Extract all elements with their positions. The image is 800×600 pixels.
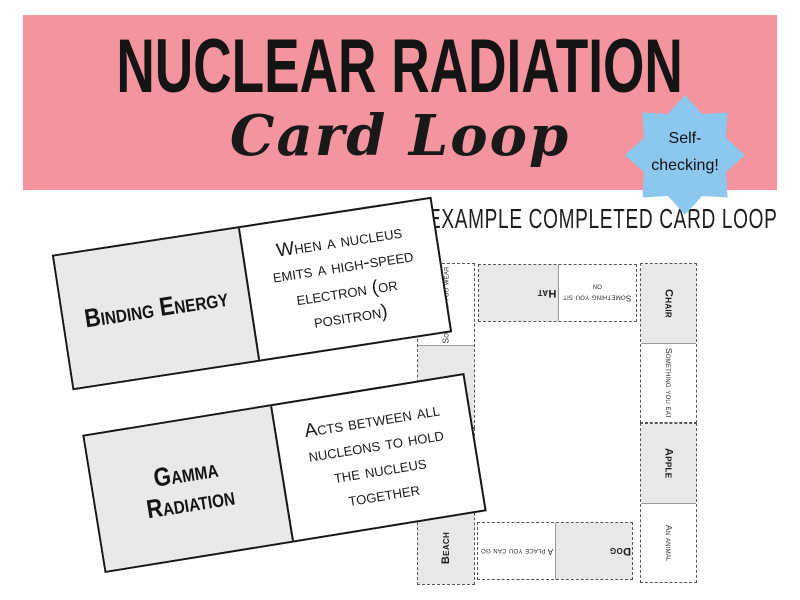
term-text: Apple: [663, 448, 675, 478]
clue-text: Something you eat: [663, 348, 674, 418]
term-text: Binding Energy: [82, 282, 230, 333]
badge-text: Self- checking!: [651, 125, 719, 179]
page-title: NUCLEAR RADIATION: [117, 32, 683, 102]
clue-cell: When a nucleus emits a high-speed electr…: [240, 199, 450, 359]
loop-card-right-2: Apple An animal: [640, 423, 697, 583]
term-cell: Apple: [641, 424, 696, 503]
clue-text: Acts between all nucleons to hold the nu…: [291, 396, 465, 521]
term-cell: Gamma Radiation: [85, 406, 294, 571]
clue-cell: A place you can go: [478, 523, 555, 579]
term-text: Gamma Radiation: [129, 450, 248, 527]
self-checking-badge: Self- checking!: [625, 95, 745, 215]
example-card-binding-energy: Binding Energy When a nucleus emits a hi…: [52, 197, 452, 391]
loop-card-bottom: A place you can go Dog: [477, 522, 633, 580]
clue-cell: Acts between all nucleons to hold the nu…: [272, 375, 485, 540]
loop-heading: EXAMPLE COMPLETED CARD LOOP: [428, 203, 800, 235]
clue-cell: An animal: [641, 503, 696, 582]
term-cell: Hat: [479, 265, 558, 321]
term-text: Hat: [481, 287, 556, 299]
loop-card-right-1: Chair Something you eat: [640, 263, 697, 423]
term-cell: Binding Energy: [54, 228, 260, 388]
clue-text: Something you sit on: [560, 282, 634, 303]
clue-text: An animal: [663, 525, 674, 562]
clue-text: When a nucleus emits a high-speed electr…: [258, 218, 431, 341]
term-cell: Beach: [418, 512, 474, 584]
term-text: Beach: [440, 513, 452, 583]
term-cell: Dog: [555, 523, 632, 579]
clue-cell: Something you eat: [641, 343, 696, 422]
term-cell: Chair: [641, 264, 696, 343]
term-text: Dog: [558, 545, 631, 557]
clue-cell: Something you sit on: [558, 265, 637, 321]
loop-card-top: Hat Something you sit on: [478, 264, 637, 322]
clue-text: A place you can go: [480, 546, 554, 556]
badge-line-1: Self-: [651, 125, 719, 152]
term-text: Chair: [663, 289, 675, 318]
badge-line-2: checking!: [651, 152, 719, 179]
page-subtitle: Card Loop: [230, 104, 570, 168]
loop-heading-text: EXAMPLE COMPLETED CARD LOOP: [428, 203, 778, 235]
